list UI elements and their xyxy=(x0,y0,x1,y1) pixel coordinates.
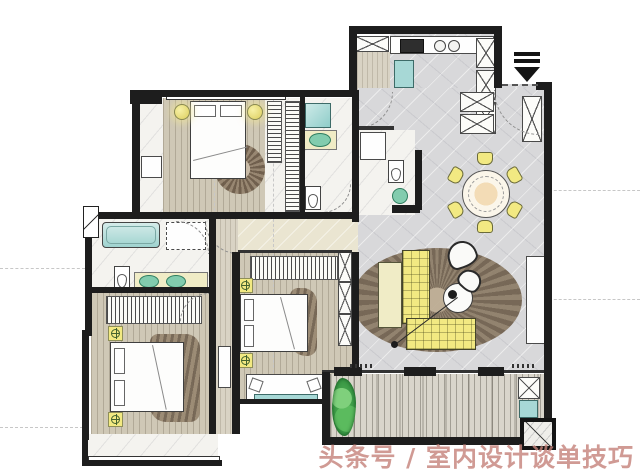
seat-pillow xyxy=(306,377,321,392)
seat-pillow xyxy=(248,377,263,392)
wall xyxy=(352,90,359,222)
bedroom2-wardrobe xyxy=(250,256,338,280)
nightstand-lamp xyxy=(238,353,253,368)
watermark-text: 头条号 / 室内设计谈单技巧 xyxy=(318,438,634,474)
wall xyxy=(209,287,216,434)
wall xyxy=(349,26,499,34)
closet-rail xyxy=(267,101,282,163)
pillow xyxy=(194,105,216,117)
balcony-cabinet xyxy=(518,377,540,399)
sofa-vertical xyxy=(402,250,430,324)
wall xyxy=(352,252,359,374)
curtain-symbol xyxy=(350,364,374,368)
bathtub xyxy=(102,222,160,248)
hallway-wall xyxy=(238,250,352,253)
duvet-fold xyxy=(152,345,167,410)
master-desk xyxy=(141,156,162,178)
sliding-door-panel xyxy=(218,346,231,388)
pantry-cabinet xyxy=(356,36,389,52)
shaft-box xyxy=(83,206,99,238)
master-shower xyxy=(305,103,331,128)
entrance-arrow-icon xyxy=(514,67,540,82)
guest-toilet-wall xyxy=(358,126,394,130)
dimension-line xyxy=(0,268,85,269)
guest-shower xyxy=(360,132,386,160)
curtain-symbol xyxy=(512,364,536,368)
arc-lamp-head xyxy=(448,290,457,299)
arc-lamp-base xyxy=(391,341,398,348)
wall xyxy=(240,399,324,404)
shoe-cabinet xyxy=(460,114,494,134)
bedside-lamp xyxy=(247,104,263,120)
bedroom3-bed xyxy=(110,342,184,412)
wall xyxy=(322,372,330,445)
duvet-fold xyxy=(280,297,295,349)
nightstand-lamp xyxy=(108,326,123,341)
nightstand-lamp xyxy=(238,278,253,293)
wall xyxy=(404,367,436,376)
wall xyxy=(349,26,357,97)
fridge xyxy=(476,38,496,68)
dining-table xyxy=(462,170,510,218)
closet-rail xyxy=(285,101,300,212)
utility-sink xyxy=(519,400,538,418)
dining-chair xyxy=(477,152,493,165)
hallway-floor xyxy=(238,219,358,252)
balcony-deck xyxy=(330,374,544,437)
wall xyxy=(82,460,222,466)
dimension-line xyxy=(544,190,640,191)
sofa-horizontal xyxy=(406,318,476,350)
side-cabinet xyxy=(338,250,352,282)
wall xyxy=(300,97,305,215)
wall xyxy=(392,205,420,213)
vanity-sink xyxy=(309,133,331,147)
side-cabinet xyxy=(338,314,352,346)
entry-threshold xyxy=(502,84,538,86)
kitchen-sink xyxy=(400,39,424,53)
pillow xyxy=(220,105,242,117)
wall xyxy=(544,82,552,450)
dimension-line xyxy=(0,427,83,428)
entrance-arrow-bar xyxy=(514,59,540,63)
tv-console xyxy=(526,256,545,344)
dining-chair xyxy=(477,220,493,233)
wall xyxy=(478,367,504,376)
kitchen-island xyxy=(394,60,414,88)
pillow xyxy=(244,299,254,321)
wall xyxy=(334,367,362,376)
floor-plan-canvas: 头条号 / 室内设计谈单技巧 xyxy=(0,0,640,474)
wall xyxy=(82,330,89,440)
pillow xyxy=(114,380,125,406)
wall xyxy=(132,90,358,97)
duvet-fold xyxy=(193,146,248,161)
entrance-arrow-bar xyxy=(514,52,540,56)
bedside-lamp xyxy=(174,104,190,120)
cooktop-burner xyxy=(448,40,460,52)
wall xyxy=(132,90,140,219)
wall xyxy=(494,26,502,88)
wall xyxy=(91,287,213,293)
master-bed xyxy=(190,101,246,179)
wall xyxy=(415,150,422,210)
pillow xyxy=(114,348,125,374)
cooktop-burner xyxy=(434,40,446,52)
side-cabinet xyxy=(338,282,352,314)
bedroom2-bed xyxy=(240,294,308,352)
pillow xyxy=(244,325,254,347)
chaise-bench xyxy=(378,262,402,328)
shoe-cabinet xyxy=(460,92,494,112)
guest-round-sink xyxy=(392,188,408,204)
wall xyxy=(232,252,240,434)
nightstand-lamp xyxy=(108,412,123,427)
wall xyxy=(209,219,216,293)
dimension-line xyxy=(544,299,640,300)
wall xyxy=(85,212,358,219)
guest-toilet-fixture xyxy=(388,160,404,183)
master-toilet xyxy=(305,186,321,210)
